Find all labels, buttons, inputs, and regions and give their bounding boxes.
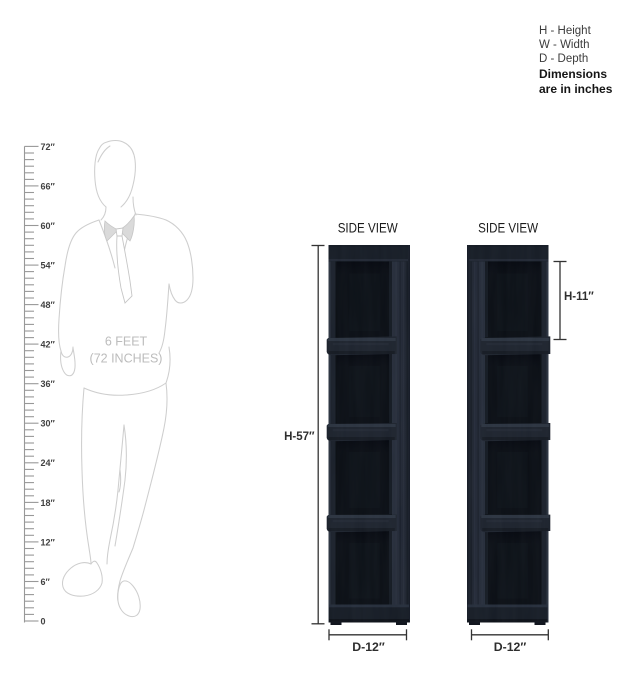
svg-text:18″: 18″ (41, 498, 56, 508)
svg-text:66″: 66″ (41, 181, 56, 191)
svg-text:24″: 24″ (41, 458, 56, 468)
svg-text:30″: 30″ (41, 419, 56, 429)
svg-text:6 FEET: 6 FEET (105, 335, 148, 349)
svg-text:36″: 36″ (41, 379, 56, 389)
svg-text:D-12″: D-12″ (352, 640, 385, 654)
svg-text:Dimensions: Dimensions (539, 67, 607, 81)
svg-text:48″: 48″ (41, 300, 56, 310)
svg-text:0: 0 (41, 616, 46, 626)
svg-text:H-57″: H-57″ (284, 431, 315, 443)
svg-text:SIDE VIEW: SIDE VIEW (478, 220, 539, 236)
svg-text:6″: 6″ (41, 577, 51, 587)
svg-text:W - Width: W - Width (539, 39, 589, 51)
svg-text:12″: 12″ (41, 537, 56, 547)
svg-text:42″: 42″ (41, 340, 56, 350)
svg-text:H-11″: H-11″ (564, 291, 594, 303)
svg-text:D-12″: D-12″ (494, 640, 527, 654)
svg-text:H - Height: H - Height (539, 25, 592, 37)
svg-text:72″: 72″ (41, 142, 56, 152)
svg-text:D - Depth: D - Depth (539, 53, 588, 65)
svg-text:60″: 60″ (41, 221, 56, 231)
svg-text:are in inches: are in inches (539, 82, 613, 96)
svg-text:54″: 54″ (41, 260, 56, 270)
svg-text:(72 INCHES): (72 INCHES) (90, 352, 163, 366)
svg-text:SIDE VIEW: SIDE VIEW (338, 220, 399, 236)
